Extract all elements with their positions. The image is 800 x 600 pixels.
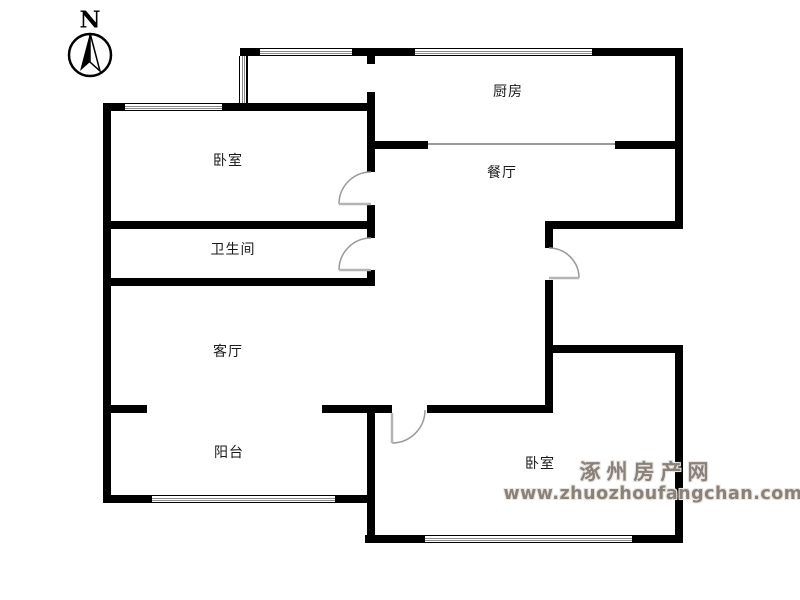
floor-plan: N 厨房 餐厅 卧室 卫生间 客厅 阳台 卧室 涿州房产网 www.zhuozh… <box>0 0 800 600</box>
window-segment <box>260 48 352 56</box>
north-arrow-icon <box>69 33 111 76</box>
wall-segment <box>240 48 260 56</box>
room-label-dining: 餐厅 <box>487 162 517 182</box>
room-label-bedroom-nw: 卧室 <box>213 150 243 170</box>
wall-segment <box>675 345 683 543</box>
wall-segment <box>615 141 682 149</box>
window-segment <box>152 495 335 503</box>
wall-segment <box>103 221 375 229</box>
wall-segment <box>103 103 111 503</box>
wall-segment <box>592 48 683 56</box>
wall-segment <box>545 345 683 353</box>
window-segment <box>425 535 632 543</box>
door-bedroom-nw <box>339 172 371 204</box>
compass-north-label: N <box>79 7 100 34</box>
wall-segment <box>545 280 553 413</box>
watermark-site-name: 涿州房产网 <box>580 456 715 486</box>
kitchen-pass-line <box>428 143 615 145</box>
wall-segment <box>103 278 375 286</box>
wall-segment <box>367 405 375 543</box>
room-label-bedroom-se: 卧室 <box>525 453 555 473</box>
door-bedroom-se <box>392 410 425 443</box>
watermark-site-url: www.zhuozhoufangchan.com <box>503 484 800 504</box>
wall-segment <box>322 405 392 413</box>
room-label-kitchen: 厨房 <box>493 81 523 101</box>
wall-segment <box>545 221 553 248</box>
wall-segment <box>368 141 428 149</box>
wall-segment <box>367 92 375 172</box>
room-label-bathroom: 卫生间 <box>211 239 256 259</box>
door-bathroom <box>339 238 371 270</box>
wall-segment <box>545 221 683 229</box>
wall-segment <box>675 48 683 227</box>
room-label-living: 客厅 <box>213 341 243 361</box>
door-entry <box>549 248 579 278</box>
wall-segment <box>222 103 375 111</box>
wall-segment <box>352 48 415 56</box>
wall-segment <box>367 205 375 238</box>
window-segment <box>415 48 592 56</box>
wall-segment <box>427 405 553 413</box>
window-segment <box>239 56 248 103</box>
wall-segment <box>367 270 375 286</box>
room-label-balcony: 阳台 <box>214 442 244 462</box>
window-segment <box>125 103 222 111</box>
wall-segment <box>367 56 375 64</box>
